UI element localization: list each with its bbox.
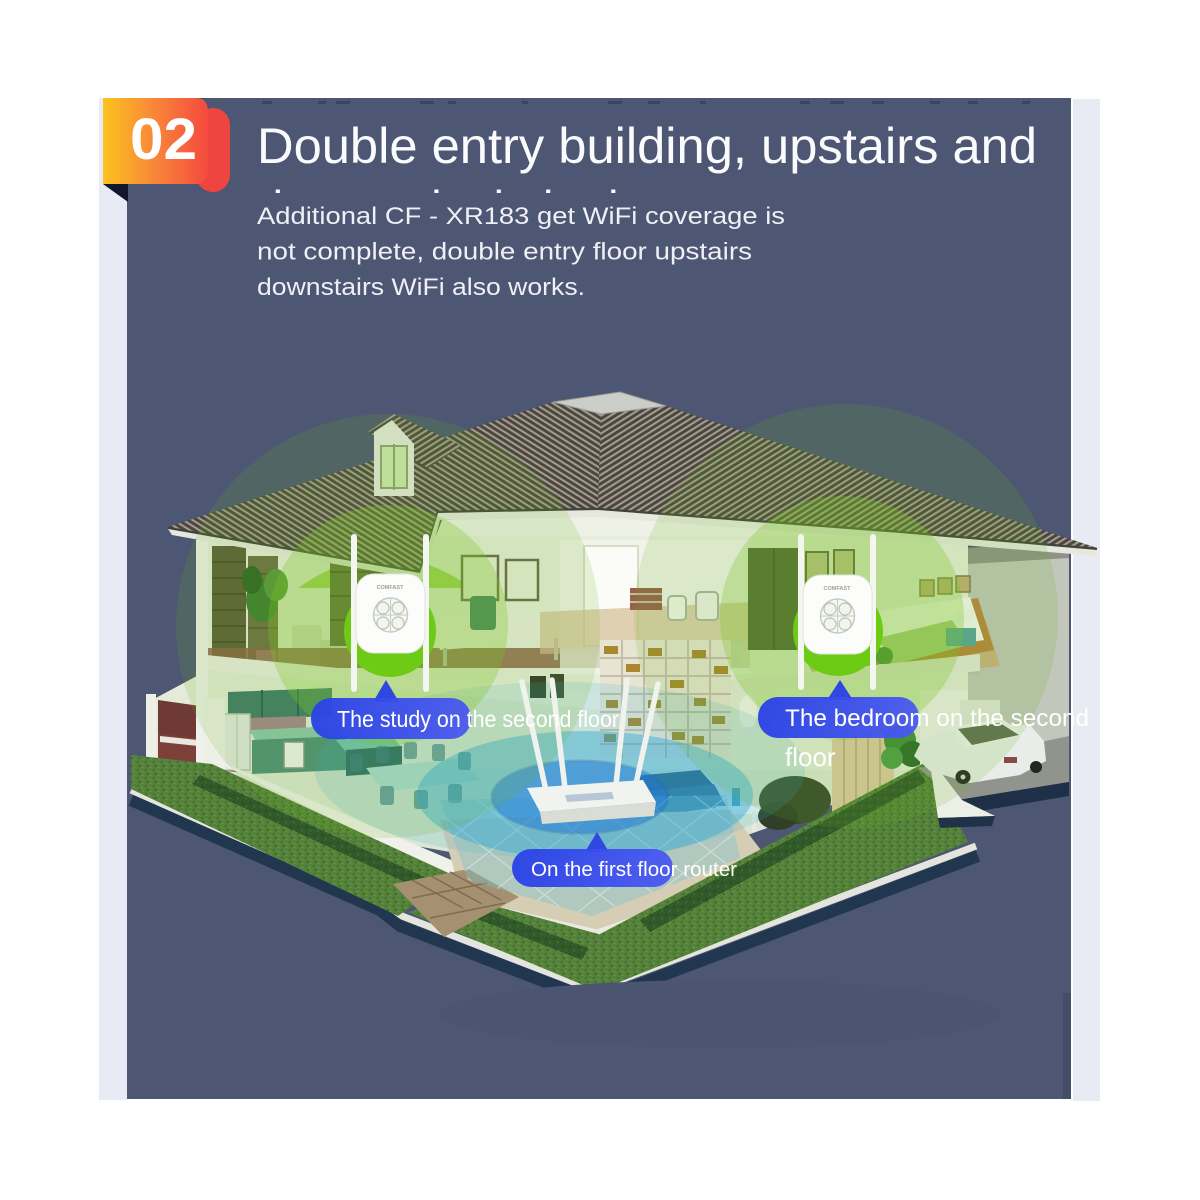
- svg-text:Additional CF - XR183 get WiFi: Additional CF - XR183 get WiFi coverage …: [257, 203, 785, 230]
- svg-text:not complete, double entry flo: not complete, double entry floor upstair…: [257, 239, 752, 266]
- svg-text:02: 02: [130, 107, 197, 172]
- svg-text:The study on the second floor: The study on the second floor: [337, 706, 619, 732]
- svg-text:COMFAST: COMFAST: [377, 585, 405, 591]
- svg-text:floor: floor: [785, 742, 836, 772]
- svg-text:downstairs WiFi also works.: downstairs WiFi also works.: [257, 274, 585, 301]
- svg-text:The bedroom on the second: The bedroom on the second: [785, 705, 1089, 732]
- svg-text:Double entry building, upstair: Double entry building, upstairs and: [257, 118, 1037, 174]
- svg-text:COMFAST: COMFAST: [824, 586, 852, 592]
- svg-text:On the first floor router: On the first floor router: [531, 859, 737, 881]
